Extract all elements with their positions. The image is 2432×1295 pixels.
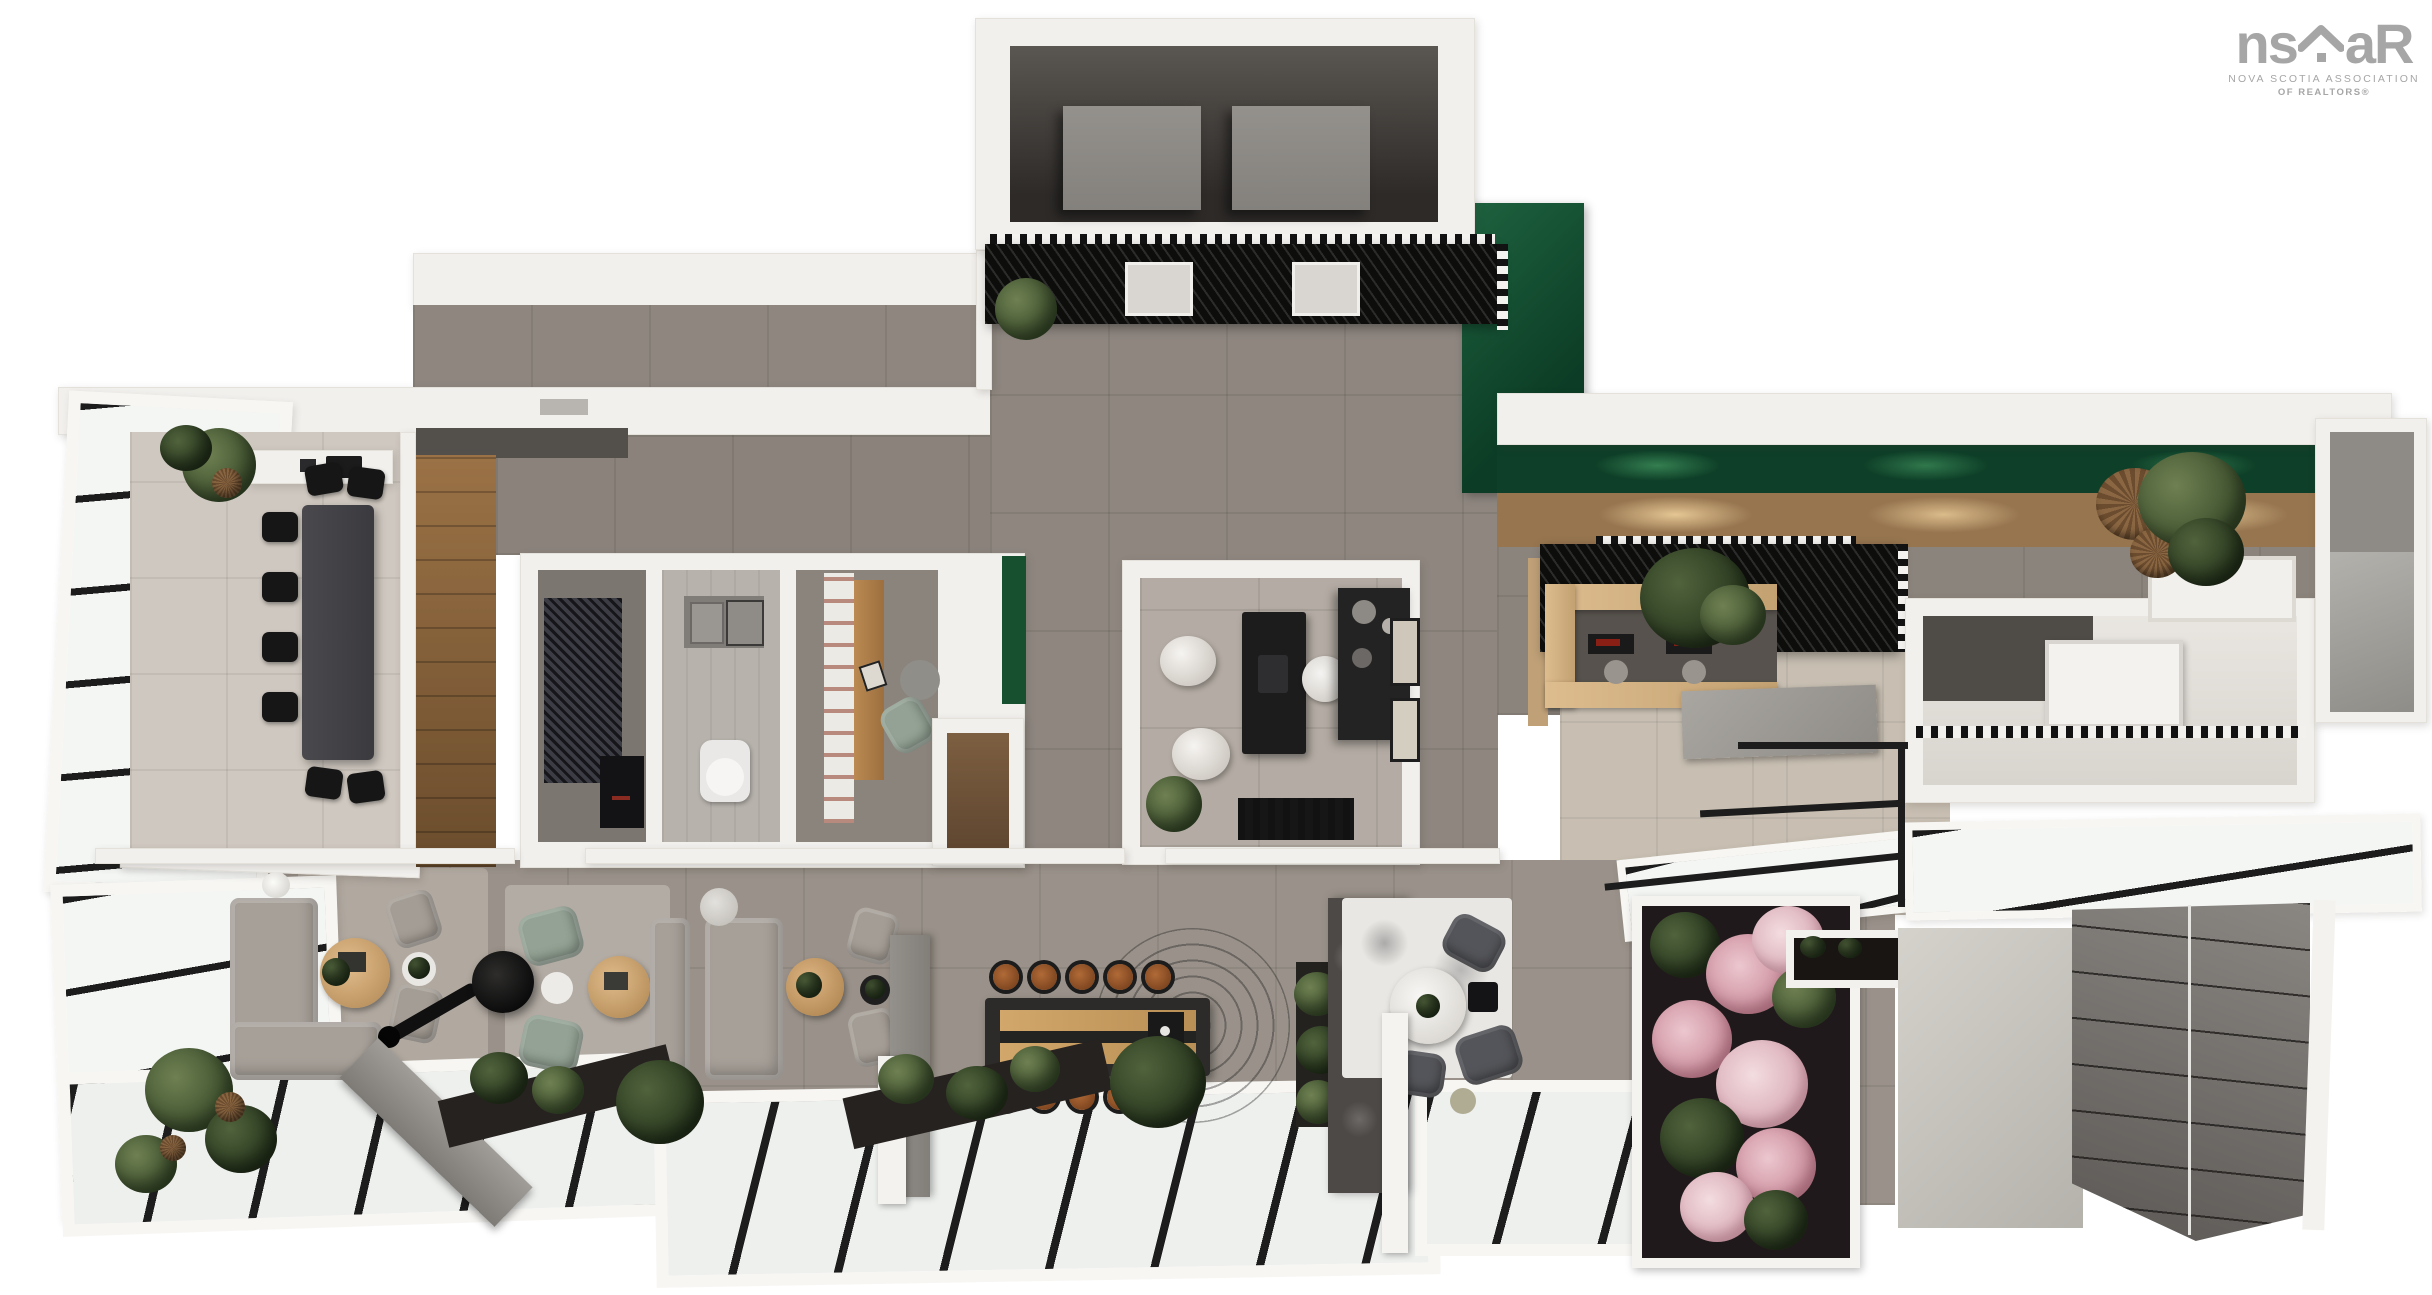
side-table-plant xyxy=(408,957,430,979)
right-room-upper xyxy=(2330,432,2414,552)
toilet-seat xyxy=(706,758,744,796)
terrace-tree-pot-2 xyxy=(160,1135,186,1161)
skylight-right-band xyxy=(1904,814,2422,921)
planter-fern-2 xyxy=(532,1066,584,1114)
logo-house-icon xyxy=(2298,24,2344,64)
suite-door xyxy=(2045,640,2183,728)
nsar-logo-wordmark: ns aR xyxy=(2224,22,2424,66)
art-frame-1 xyxy=(1390,618,1420,686)
coffee-table-plant xyxy=(322,958,350,986)
terrace-north-wall-2 xyxy=(585,848,1125,864)
garage-slope-panels xyxy=(2072,903,2310,1241)
planter-fern-5 xyxy=(1010,1046,1060,1092)
seed-bed-sprouts-2 xyxy=(1838,938,1862,958)
bar-stool xyxy=(1069,964,1095,990)
desk-monitor xyxy=(1258,655,1288,693)
planter-fern-3 xyxy=(878,1054,934,1104)
entry-canopy xyxy=(985,244,1497,324)
hedge-plant xyxy=(160,425,212,471)
workstation-1-display xyxy=(1596,639,1620,646)
bar-stool xyxy=(1031,964,1057,990)
group-table-plant xyxy=(796,972,822,998)
closet-dark-wall xyxy=(416,428,628,458)
elevator-shaft-2 xyxy=(1232,106,1370,210)
floor-cushion xyxy=(1450,1088,1476,1114)
office-plant xyxy=(1146,776,1202,832)
floorplan-render: ns aR NOVA SCOTIA ASSOCIATION OF REALTOR… xyxy=(0,0,2432,1295)
shelf-decor-plate-1 xyxy=(1352,600,1376,624)
elevator-door-1 xyxy=(1125,262,1193,316)
garage-center-seam xyxy=(2188,905,2191,1235)
black-table-plant xyxy=(865,979,885,999)
wood-floor-hallway xyxy=(416,455,496,867)
entry-tree xyxy=(995,278,1057,340)
corridor-floor-upper xyxy=(413,305,990,389)
conference-chair xyxy=(262,572,298,602)
conference-plant-pot xyxy=(212,468,242,498)
bar-stool xyxy=(1145,964,1171,990)
bar-appliance-cup xyxy=(1160,1026,1170,1036)
utility-cabinet xyxy=(600,756,644,828)
conference-chair xyxy=(304,461,345,497)
suite-joist-ticks xyxy=(1916,726,2306,738)
garden-flowers-6 xyxy=(1680,1172,1754,1242)
top-wall-band-west xyxy=(413,253,990,307)
roof-band-right xyxy=(1497,393,2392,445)
seed-bed-sprouts xyxy=(1800,936,1826,958)
garden-shrub-4 xyxy=(1744,1190,1808,1250)
facing-sofa-right xyxy=(705,918,783,1080)
desk-fan-1 xyxy=(1604,660,1628,684)
reception-monstera-leaf xyxy=(1700,585,1766,645)
planter-fern-4 xyxy=(946,1066,1008,1120)
conference-east-wall xyxy=(400,432,416,867)
vanity-mirror-1 xyxy=(690,602,724,644)
guest-pouf-2 xyxy=(1172,728,1230,780)
planter-fern-1 xyxy=(470,1052,528,1104)
conference-chair xyxy=(346,466,386,501)
logo-text-ar: aR xyxy=(2345,22,2413,66)
suspended-fireplace xyxy=(472,951,534,1013)
green-wall-horizontal xyxy=(1497,443,2390,493)
nsar-logo: ns aR NOVA SCOTIA ASSOCIATION OF REALTOR… xyxy=(2224,22,2424,98)
entry-nook-wood-floor xyxy=(947,733,1009,851)
terrace-tree-pot-1 xyxy=(215,1092,245,1122)
stair-railing-top xyxy=(1738,742,1908,749)
elevator-shaft-1 xyxy=(1063,106,1201,210)
dining-side-table xyxy=(1468,982,1498,1012)
patio-concrete xyxy=(1898,928,2083,1228)
desk-fan-2 xyxy=(1682,660,1706,684)
round-table-white xyxy=(541,972,573,1004)
conference-chair xyxy=(262,692,298,722)
terrace-north-wall-1 xyxy=(95,848,515,864)
dining-partition-white xyxy=(1382,1013,1408,1253)
large-leaf-plant-1 xyxy=(616,1060,704,1144)
roof-vent xyxy=(540,399,588,415)
stair-railing-post xyxy=(1898,742,1905,907)
oak-table-decor xyxy=(604,972,628,990)
conference-chair xyxy=(262,632,298,662)
garden-shrub-3 xyxy=(1660,1098,1744,1178)
conference-table xyxy=(302,505,374,760)
study-shelf xyxy=(824,573,854,823)
logo-subtitle-line2: OF REALTORS® xyxy=(2224,87,2424,98)
green-wall-sliver xyxy=(1002,556,1026,704)
study-side-table xyxy=(900,660,940,700)
bar-stool xyxy=(993,964,1019,990)
logo-subtitle-line1: NOVA SCOTIA ASSOCIATION xyxy=(2224,73,2424,85)
conference-chair xyxy=(304,766,344,801)
elevator-door-2 xyxy=(1292,262,1360,316)
canopy-comb-edge-right xyxy=(1497,244,1508,330)
flower-vase xyxy=(262,872,290,898)
logo-text-ns: ns xyxy=(2236,22,2297,66)
planter-shrub-2 xyxy=(2168,518,2244,586)
vanity-mirror-2 xyxy=(726,600,764,646)
large-leaf-plant-2 xyxy=(1110,1036,1206,1128)
cabinet-red-detail xyxy=(612,796,630,800)
conference-chair xyxy=(346,770,386,805)
terrace-north-wall-3 xyxy=(1165,848,1500,864)
bar-stool xyxy=(1107,964,1133,990)
art-frame-2 xyxy=(1390,698,1420,762)
between-sofas-table xyxy=(700,888,738,926)
conference-chair xyxy=(262,512,298,542)
dining-centerpiece xyxy=(1416,994,1440,1018)
office-doormat xyxy=(1238,798,1354,840)
guest-pouf-1 xyxy=(1160,636,1216,686)
right-room-concrete-floor xyxy=(2330,552,2414,712)
shelf-decor-plate-3 xyxy=(1352,648,1372,668)
